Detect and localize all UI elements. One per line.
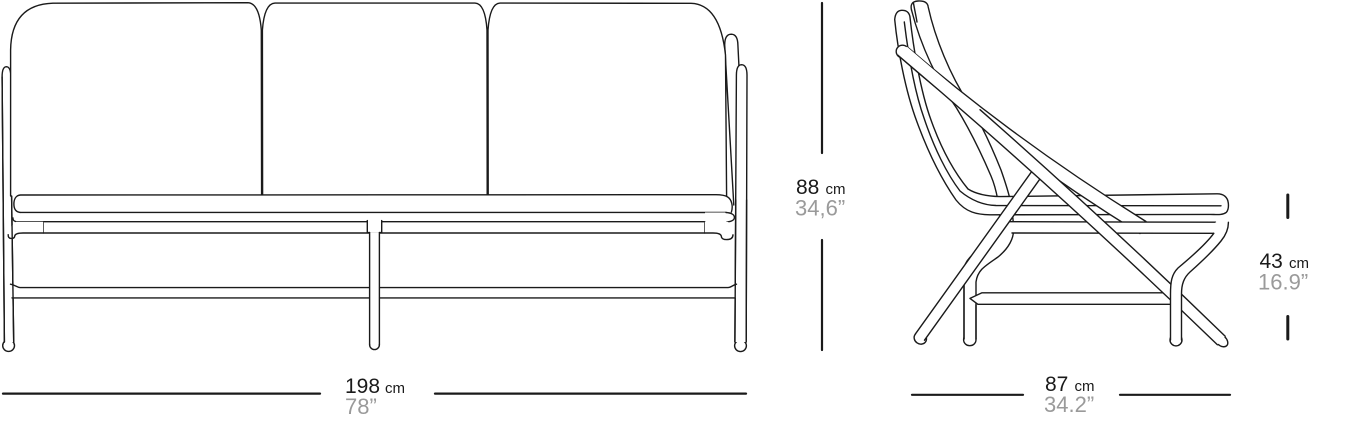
svg-text:16.9”: 16.9” [1258,270,1308,295]
svg-text:34.2”: 34.2” [1044,392,1094,417]
svg-text:78”: 78” [345,394,377,419]
svg-text:cm: cm [385,380,405,397]
svg-text:34,6”: 34,6” [795,196,845,221]
